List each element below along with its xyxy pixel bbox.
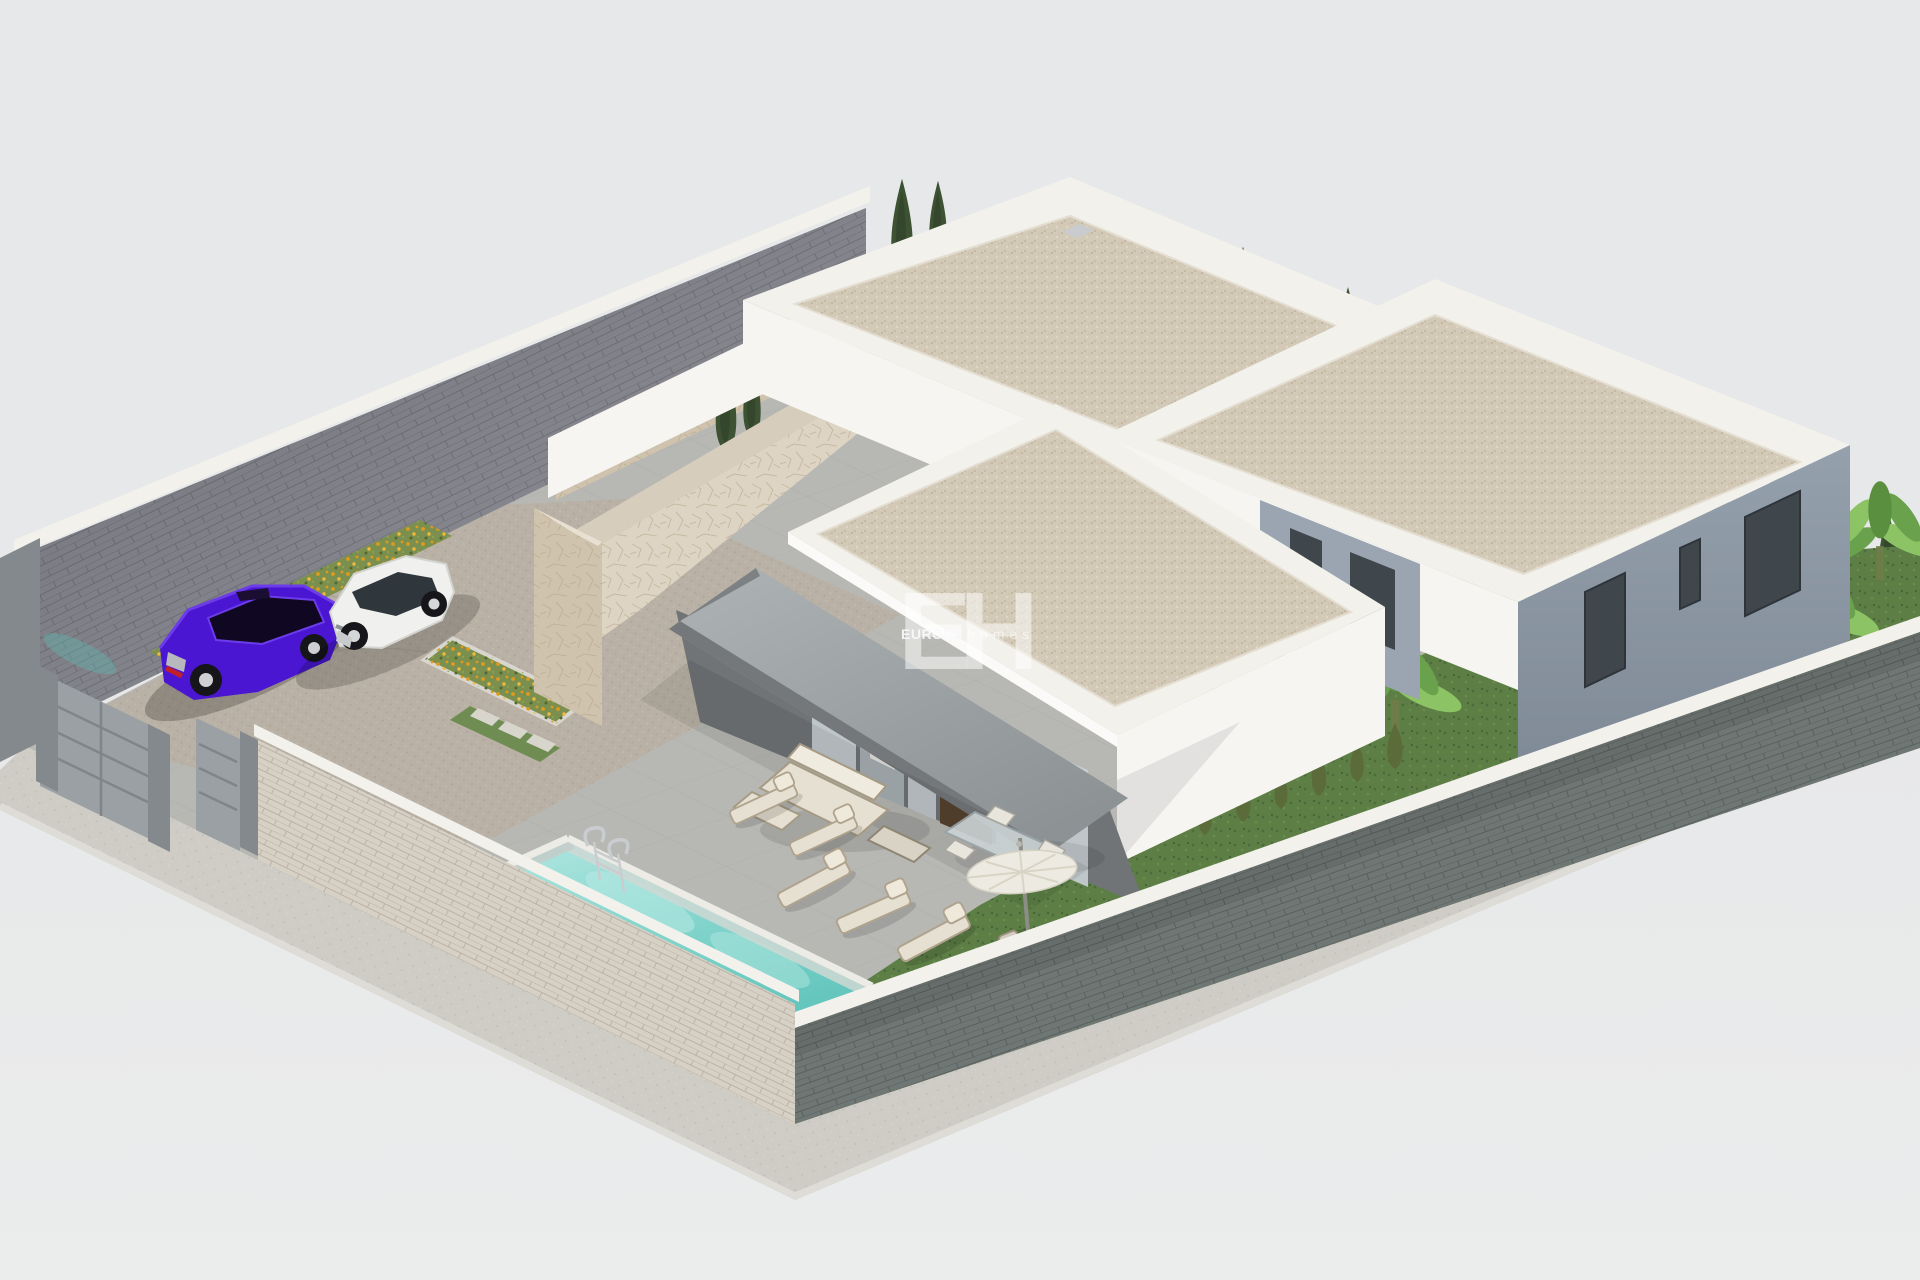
render-canvas (0, 0, 1920, 1280)
render-screenshot: EH EUROPEhomes (0, 0, 1920, 1280)
